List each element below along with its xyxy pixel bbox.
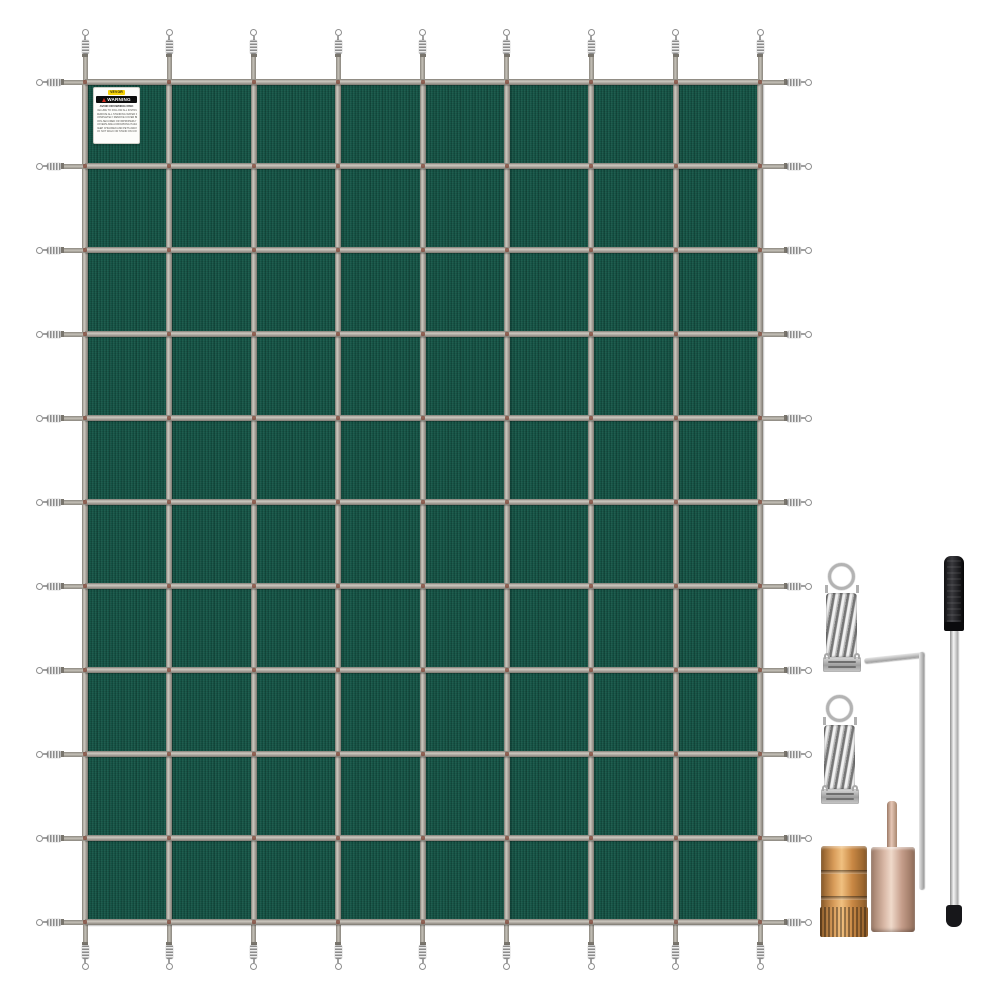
strap-stitch bbox=[758, 416, 762, 420]
strap-stitch bbox=[167, 80, 171, 84]
strap-stitch bbox=[336, 80, 340, 84]
strap-stitch bbox=[421, 416, 425, 420]
strap-tail-spring bbox=[760, 498, 812, 506]
tail-ring-icon bbox=[36, 331, 43, 338]
strap-stitch bbox=[758, 920, 762, 924]
tail-spring-icon bbox=[335, 40, 342, 54]
strap-stitch bbox=[167, 668, 171, 672]
strap-stitch bbox=[589, 584, 593, 588]
strap-stitch bbox=[167, 248, 171, 252]
strap-tail-spring bbox=[760, 582, 812, 590]
spring-coil bbox=[826, 593, 857, 657]
strap-stitch bbox=[252, 416, 256, 420]
strap-stitch bbox=[674, 164, 678, 168]
tail-part bbox=[251, 922, 256, 942]
tail-ring-icon bbox=[36, 163, 43, 170]
strap-stitch bbox=[336, 752, 340, 756]
strap-stitch bbox=[589, 752, 593, 756]
strap-stitch bbox=[505, 752, 509, 756]
strap-stitch bbox=[336, 416, 340, 420]
tail-spring-icon bbox=[82, 40, 89, 54]
tail-part bbox=[760, 668, 784, 673]
tail-spring-icon bbox=[47, 79, 61, 86]
tail-spring-icon bbox=[588, 945, 595, 959]
tail-spring-icon bbox=[588, 40, 595, 54]
tail-part bbox=[760, 836, 784, 841]
strap-tail-spring bbox=[672, 922, 680, 970]
anchor-spring-1 bbox=[821, 563, 863, 679]
strap-stitch bbox=[674, 248, 678, 252]
strap-stitch bbox=[505, 584, 509, 588]
strap-stitch bbox=[336, 500, 340, 504]
tail-ring-icon bbox=[588, 963, 595, 970]
strap-tail-spring bbox=[419, 922, 427, 970]
tail-ring-icon bbox=[82, 963, 89, 970]
hex-key-arm bbox=[864, 652, 924, 663]
strap-stitch bbox=[252, 164, 256, 168]
strap-stitch bbox=[758, 80, 762, 84]
strap-stitch bbox=[252, 584, 256, 588]
strap-stitch bbox=[589, 500, 593, 504]
strap-tail-spring bbox=[36, 414, 85, 422]
pool-cover-product-photo: VEVOR WARNING AVOID DROWNING RISK FAILUR… bbox=[0, 0, 1000, 1000]
strap-tail-spring bbox=[36, 330, 85, 338]
tail-ring-icon bbox=[757, 963, 764, 970]
tail-part bbox=[64, 416, 85, 421]
tail-ring-icon bbox=[757, 29, 764, 36]
tail-part bbox=[504, 922, 509, 942]
tail-spring-icon bbox=[47, 583, 61, 590]
warning-triangle-icon bbox=[102, 98, 106, 102]
tail-spring-icon bbox=[335, 945, 342, 959]
copper-tamping-tool bbox=[871, 847, 915, 932]
warning-band: WARNING bbox=[96, 96, 137, 103]
strap-stitch bbox=[167, 584, 171, 588]
tail-part bbox=[420, 922, 425, 942]
strap-stitch bbox=[758, 164, 762, 168]
spring-hooks bbox=[825, 585, 859, 593]
strap-stitch bbox=[758, 584, 762, 588]
tail-ring-icon bbox=[419, 963, 426, 970]
strap-stitch bbox=[674, 332, 678, 336]
strap-stitch bbox=[421, 248, 425, 252]
strap-stitch bbox=[252, 332, 256, 336]
strap-stitch bbox=[505, 80, 509, 84]
strap-stitch bbox=[252, 248, 256, 252]
strap-stitch bbox=[589, 164, 593, 168]
tail-ring-icon bbox=[805, 331, 812, 338]
tail-spring-icon bbox=[787, 751, 801, 758]
brand-logo: VEVOR bbox=[108, 90, 125, 95]
tail-spring-icon bbox=[757, 945, 764, 959]
strap-stitch bbox=[252, 80, 256, 84]
strap-tail-spring bbox=[36, 582, 85, 590]
strap-stitch bbox=[167, 752, 171, 756]
tail-ring-icon bbox=[82, 29, 89, 36]
strap-tail-spring bbox=[760, 834, 812, 842]
tail-spring-icon bbox=[787, 499, 801, 506]
strap-stitch bbox=[421, 332, 425, 336]
strap-tail-spring bbox=[760, 918, 812, 926]
strap-stitch bbox=[167, 836, 171, 840]
tail-ring-icon bbox=[335, 963, 342, 970]
tail-ring-icon bbox=[805, 163, 812, 170]
tail-part bbox=[760, 920, 784, 925]
strap-stitch bbox=[336, 164, 340, 168]
tail-part bbox=[64, 836, 85, 841]
strap-tail-spring bbox=[503, 922, 511, 970]
strap-stitch bbox=[758, 332, 762, 336]
tail-ring-icon bbox=[335, 29, 342, 36]
strap-stitch bbox=[252, 920, 256, 924]
tail-spring-icon bbox=[757, 40, 764, 54]
tail-ring-icon bbox=[805, 667, 812, 674]
tail-ring-icon bbox=[36, 499, 43, 506]
tail-spring-icon bbox=[787, 919, 801, 926]
strap-stitch bbox=[83, 752, 87, 756]
strap-stitch bbox=[758, 500, 762, 504]
tail-ring-icon bbox=[503, 29, 510, 36]
strap-stitch bbox=[674, 584, 678, 588]
tail-ring-icon bbox=[166, 29, 173, 36]
strap-stitch bbox=[505, 332, 509, 336]
tail-part bbox=[589, 922, 594, 942]
tail-spring-icon bbox=[47, 415, 61, 422]
spring-coil bbox=[824, 725, 855, 789]
strap-tail-spring bbox=[81, 29, 89, 82]
tail-ring-icon bbox=[36, 835, 43, 842]
tail-ring-icon bbox=[250, 963, 257, 970]
strap-stitch bbox=[505, 248, 509, 252]
tail-spring-icon bbox=[47, 835, 61, 842]
strap-stitch bbox=[167, 164, 171, 168]
tail-spring-icon bbox=[787, 667, 801, 674]
tail-ring-icon bbox=[250, 29, 257, 36]
strap-stitch bbox=[758, 248, 762, 252]
strap-stitch bbox=[674, 752, 678, 756]
tail-part bbox=[760, 80, 784, 85]
strap-stitch bbox=[505, 164, 509, 168]
strap-stitch bbox=[252, 752, 256, 756]
strap-stitch bbox=[336, 836, 340, 840]
tail-spring-icon bbox=[419, 40, 426, 54]
strap-stitch bbox=[758, 668, 762, 672]
strap-stitch bbox=[83, 248, 87, 252]
strap-tail-spring bbox=[250, 922, 258, 970]
strap-tail-spring bbox=[587, 29, 595, 82]
strap-stitch bbox=[83, 920, 87, 924]
strap-stitch bbox=[167, 416, 171, 420]
strap-stitch bbox=[674, 416, 678, 420]
tail-spring-icon bbox=[672, 945, 679, 959]
tail-part bbox=[760, 164, 784, 169]
tail-spring-icon bbox=[787, 247, 801, 254]
strap-stitch bbox=[421, 584, 425, 588]
strap-stitch bbox=[252, 836, 256, 840]
tail-part bbox=[64, 752, 85, 757]
strap-tail-spring bbox=[36, 666, 85, 674]
tail-part bbox=[64, 668, 85, 673]
strap-stitch bbox=[505, 836, 509, 840]
strap-stitch bbox=[83, 584, 87, 588]
tail-ring-icon bbox=[805, 751, 812, 758]
strap-stitch bbox=[589, 920, 593, 924]
strap-tail-spring bbox=[36, 78, 85, 86]
tail-ring-icon bbox=[503, 963, 510, 970]
tail-part bbox=[64, 920, 85, 925]
strap-tail-spring bbox=[760, 246, 812, 254]
strap-stitch bbox=[421, 500, 425, 504]
tamping-tool-pin bbox=[887, 801, 897, 851]
tail-part bbox=[760, 416, 784, 421]
strap-tail-spring bbox=[250, 29, 258, 82]
tail-part bbox=[64, 332, 85, 337]
strap-tail-spring bbox=[36, 834, 85, 842]
strap-stitch bbox=[83, 416, 87, 420]
strap-tail-spring bbox=[419, 29, 427, 82]
strap-tail-spring bbox=[36, 162, 85, 170]
brass-anchor bbox=[821, 846, 867, 937]
tail-ring-icon bbox=[166, 963, 173, 970]
tail-spring-icon bbox=[250, 945, 257, 959]
strap-stitch bbox=[674, 668, 678, 672]
strap-stitch bbox=[83, 668, 87, 672]
strap-stitch bbox=[674, 500, 678, 504]
tail-spring-icon bbox=[47, 751, 61, 758]
strap-tail-spring bbox=[760, 414, 812, 422]
strap-stitch bbox=[83, 500, 87, 504]
tail-part bbox=[760, 332, 784, 337]
tail-ring-icon bbox=[805, 919, 812, 926]
strap-tail-spring bbox=[36, 918, 85, 926]
tail-ring-icon bbox=[672, 963, 679, 970]
tail-spring-icon bbox=[166, 945, 173, 959]
tail-ring-icon bbox=[36, 919, 43, 926]
tail-part bbox=[167, 922, 172, 942]
anchor-spring-2 bbox=[819, 695, 861, 811]
tail-ring-icon bbox=[588, 29, 595, 36]
tail-ring-icon bbox=[672, 29, 679, 36]
tail-spring-icon bbox=[787, 163, 801, 170]
strap-stitch bbox=[589, 248, 593, 252]
tail-ring-icon bbox=[36, 415, 43, 422]
strap-stitch bbox=[505, 920, 509, 924]
installation-rod-tip bbox=[946, 905, 962, 927]
strap-stitch bbox=[674, 80, 678, 84]
tail-spring-icon bbox=[47, 163, 61, 170]
spring-buckle bbox=[823, 657, 861, 672]
strap-tail-spring bbox=[760, 666, 812, 674]
tail-spring-icon bbox=[787, 583, 801, 590]
tail-part bbox=[760, 248, 784, 253]
strap-stitch bbox=[421, 164, 425, 168]
tail-spring-icon bbox=[82, 945, 89, 959]
strap-tail-spring bbox=[672, 29, 680, 82]
tail-part bbox=[64, 164, 85, 169]
strap-tail-spring bbox=[587, 922, 595, 970]
strap-stitch bbox=[674, 836, 678, 840]
tail-part bbox=[673, 922, 678, 942]
hex-key-leg bbox=[919, 652, 924, 890]
tail-ring-icon bbox=[419, 29, 426, 36]
tail-ring-icon bbox=[805, 583, 812, 590]
strap-stitch bbox=[83, 164, 87, 168]
spring-hooks bbox=[823, 717, 857, 725]
strap-tail-spring bbox=[81, 922, 89, 970]
strap-stitch bbox=[336, 248, 340, 252]
tail-ring-icon bbox=[805, 247, 812, 254]
tail-part bbox=[64, 584, 85, 589]
tail-spring-icon bbox=[166, 40, 173, 54]
tail-ring-icon bbox=[805, 415, 812, 422]
tail-part bbox=[64, 500, 85, 505]
tail-spring-icon bbox=[47, 667, 61, 674]
tail-part bbox=[760, 500, 784, 505]
strap-stitch bbox=[336, 332, 340, 336]
strap-stitch bbox=[505, 500, 509, 504]
tail-spring-icon bbox=[503, 40, 510, 54]
warning-label: VEVOR WARNING AVOID DROWNING RISK FAILUR… bbox=[93, 87, 140, 144]
label-line: DO NOT WALK OR STAND ON COVER bbox=[97, 130, 137, 134]
strap-stitch bbox=[167, 920, 171, 924]
tail-spring-icon bbox=[47, 499, 61, 506]
strap-stitch bbox=[421, 668, 425, 672]
strap-stitch bbox=[336, 584, 340, 588]
strap-tail-spring bbox=[756, 922, 764, 970]
strap-stitch bbox=[505, 416, 509, 420]
strap-stitch bbox=[589, 668, 593, 672]
strap-stitch bbox=[421, 752, 425, 756]
strap-stitch bbox=[336, 668, 340, 672]
tail-ring-icon bbox=[36, 583, 43, 590]
tail-ring-icon bbox=[805, 499, 812, 506]
tail-spring-icon bbox=[250, 40, 257, 54]
strap-tail-spring bbox=[36, 498, 85, 506]
tail-spring-icon bbox=[787, 331, 801, 338]
tail-spring-icon bbox=[787, 79, 801, 86]
tail-ring-icon bbox=[805, 835, 812, 842]
strap-tail-spring bbox=[165, 29, 173, 82]
strap-stitch bbox=[421, 920, 425, 924]
strap-tail-spring bbox=[756, 29, 764, 82]
strap-tail-spring bbox=[36, 750, 85, 758]
strap-stitch bbox=[589, 332, 593, 336]
tail-ring-icon bbox=[36, 751, 43, 758]
strap-stitch bbox=[252, 500, 256, 504]
spring-buckle bbox=[821, 789, 859, 804]
label-title: AVOID DROWNING RISK bbox=[100, 105, 134, 108]
installation-rod-collar bbox=[944, 622, 964, 631]
strap-stitch bbox=[758, 836, 762, 840]
tail-spring-icon bbox=[787, 415, 801, 422]
strap-tail-spring bbox=[760, 162, 812, 170]
strap-tail-spring bbox=[334, 29, 342, 82]
strap-stitch bbox=[167, 332, 171, 336]
strap-stitch bbox=[167, 500, 171, 504]
tail-part bbox=[760, 584, 784, 589]
tail-ring-icon bbox=[805, 79, 812, 86]
strap-stitch bbox=[589, 416, 593, 420]
strap-stitch bbox=[421, 80, 425, 84]
tail-part bbox=[64, 80, 85, 85]
tail-spring-icon bbox=[47, 247, 61, 254]
tail-spring-icon bbox=[503, 945, 510, 959]
strap-stitch bbox=[83, 836, 87, 840]
tail-part bbox=[64, 248, 85, 253]
label-fine-print: FAILURE TO FOLLOW ALL INSTRUCTIONS MAY R… bbox=[97, 109, 137, 134]
tail-spring-icon bbox=[47, 331, 61, 338]
strap-tail-spring bbox=[760, 330, 812, 338]
installation-rod-handle bbox=[944, 556, 964, 626]
strap-tail-spring bbox=[36, 246, 85, 254]
strap-tail-spring bbox=[503, 29, 511, 82]
strap-tail-spring bbox=[165, 922, 173, 970]
installation-rod-shaft bbox=[950, 631, 958, 907]
strap-stitch bbox=[421, 836, 425, 840]
strap-stitch bbox=[83, 332, 87, 336]
strap-stitch bbox=[83, 80, 87, 84]
tail-spring-icon bbox=[419, 945, 426, 959]
tail-part bbox=[336, 922, 341, 942]
strap-tail-spring bbox=[760, 750, 812, 758]
strap-tail-spring bbox=[334, 922, 342, 970]
anchor-knurl bbox=[820, 907, 868, 937]
strap-stitch bbox=[758, 752, 762, 756]
tail-ring-icon bbox=[36, 667, 43, 674]
strap-stitch bbox=[505, 668, 509, 672]
tail-spring-icon bbox=[47, 919, 61, 926]
strap-stitch bbox=[336, 920, 340, 924]
strap-stitch bbox=[589, 80, 593, 84]
warning-text: WARNING bbox=[107, 97, 131, 102]
tail-ring-icon bbox=[36, 247, 43, 254]
tail-ring-icon bbox=[36, 79, 43, 86]
tail-part bbox=[760, 752, 784, 757]
strap-stitch bbox=[674, 920, 678, 924]
strap-tail-spring bbox=[760, 78, 812, 86]
tail-spring-icon bbox=[787, 835, 801, 842]
strap-stitch bbox=[589, 836, 593, 840]
tail-spring-icon bbox=[672, 40, 679, 54]
strap-stitch bbox=[252, 668, 256, 672]
